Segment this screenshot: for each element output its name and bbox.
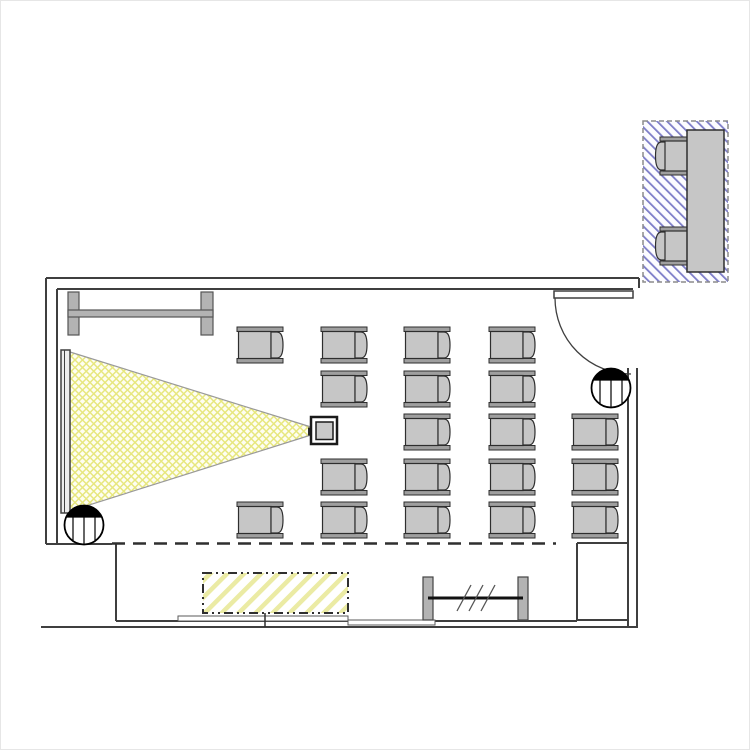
window-sill [178,616,265,621]
chair [489,327,535,363]
wall-rack [68,292,213,335]
chair [404,371,450,407]
door-leaf [554,291,633,298]
chair [404,459,450,495]
structural-column [65,506,104,545]
chair [404,502,450,538]
chair [572,414,618,450]
inset-chair [656,137,689,175]
rack-bar [68,310,213,317]
window-sill [265,616,348,621]
chair [404,327,450,363]
chair [489,414,535,450]
structural-column [592,368,631,407]
screen-board [61,350,70,513]
chair [237,327,283,363]
projection-cone [70,352,311,511]
chair [237,502,283,538]
door [554,291,633,374]
floor-plan-drawing [0,0,750,750]
chair [489,371,535,407]
window-sill [348,620,435,625]
inset-chair [656,227,689,265]
column-fill-segment [593,368,629,380]
projector [308,417,337,444]
inset-table [687,130,724,272]
chair [489,502,535,538]
detail-inset [643,121,728,282]
chair [321,327,367,363]
projection-beam [70,352,311,511]
chair [572,459,618,495]
floor-plan-page [0,0,750,750]
projector-top [316,422,333,440]
chair [404,414,450,450]
radiator [423,577,528,620]
hatched-area-border [203,573,348,613]
projection-screen [61,350,70,513]
chair [489,459,535,495]
chair [572,502,618,538]
chair [321,459,367,495]
window-wall [178,616,435,625]
door-swing-arc [555,298,631,374]
chair [321,502,367,538]
chair [321,371,367,407]
